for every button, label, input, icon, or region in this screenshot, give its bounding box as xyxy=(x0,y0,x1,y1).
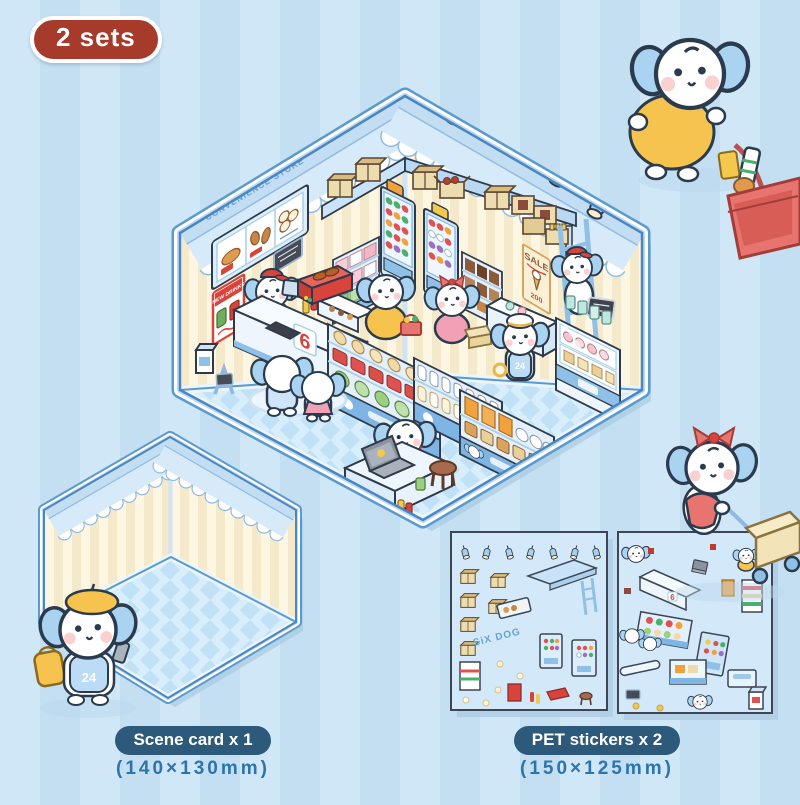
yellow-bag xyxy=(33,645,66,687)
cream-basket xyxy=(465,326,491,348)
white-cap xyxy=(507,314,533,328)
milk-carton xyxy=(196,344,217,373)
sticker-poster xyxy=(508,684,521,701)
scene-card-caption: Scene card x 1 (140×130mm) xyxy=(88,726,298,780)
svg-text:6: 6 xyxy=(670,593,675,602)
pet-stickers-size: (150×125mm) xyxy=(486,758,708,780)
scene-card-size: (140×130mm) xyxy=(88,758,298,780)
pink-bow xyxy=(694,428,734,446)
pet-stickers-caption: PET stickers x 2 (150×125mm) xyxy=(486,726,708,780)
sets-badge: 2 sets xyxy=(30,16,162,63)
green-cup xyxy=(416,478,425,490)
sticker-freezer xyxy=(728,670,756,687)
sticker-laptop xyxy=(692,560,708,575)
pet-stickers-title: PET stickers x 2 xyxy=(514,726,680,755)
scene-card-title: Scene card x 1 xyxy=(115,726,270,755)
staff-number: 24 xyxy=(515,361,525,371)
shopping-basket xyxy=(718,147,800,258)
dog-with-basket xyxy=(628,40,800,258)
sticker-small-shelf xyxy=(460,662,480,690)
sticker-milk-carton xyxy=(749,687,766,709)
vest-number: 24 xyxy=(82,670,97,685)
sticker-sheet-right: 6 xyxy=(618,532,778,720)
illustration-canvas: SiX DOG CONVENIENCE STORE xyxy=(0,0,800,800)
sticker-bread-case xyxy=(670,660,706,684)
sticker-sheet-left: SiX DOG xyxy=(451,532,613,717)
